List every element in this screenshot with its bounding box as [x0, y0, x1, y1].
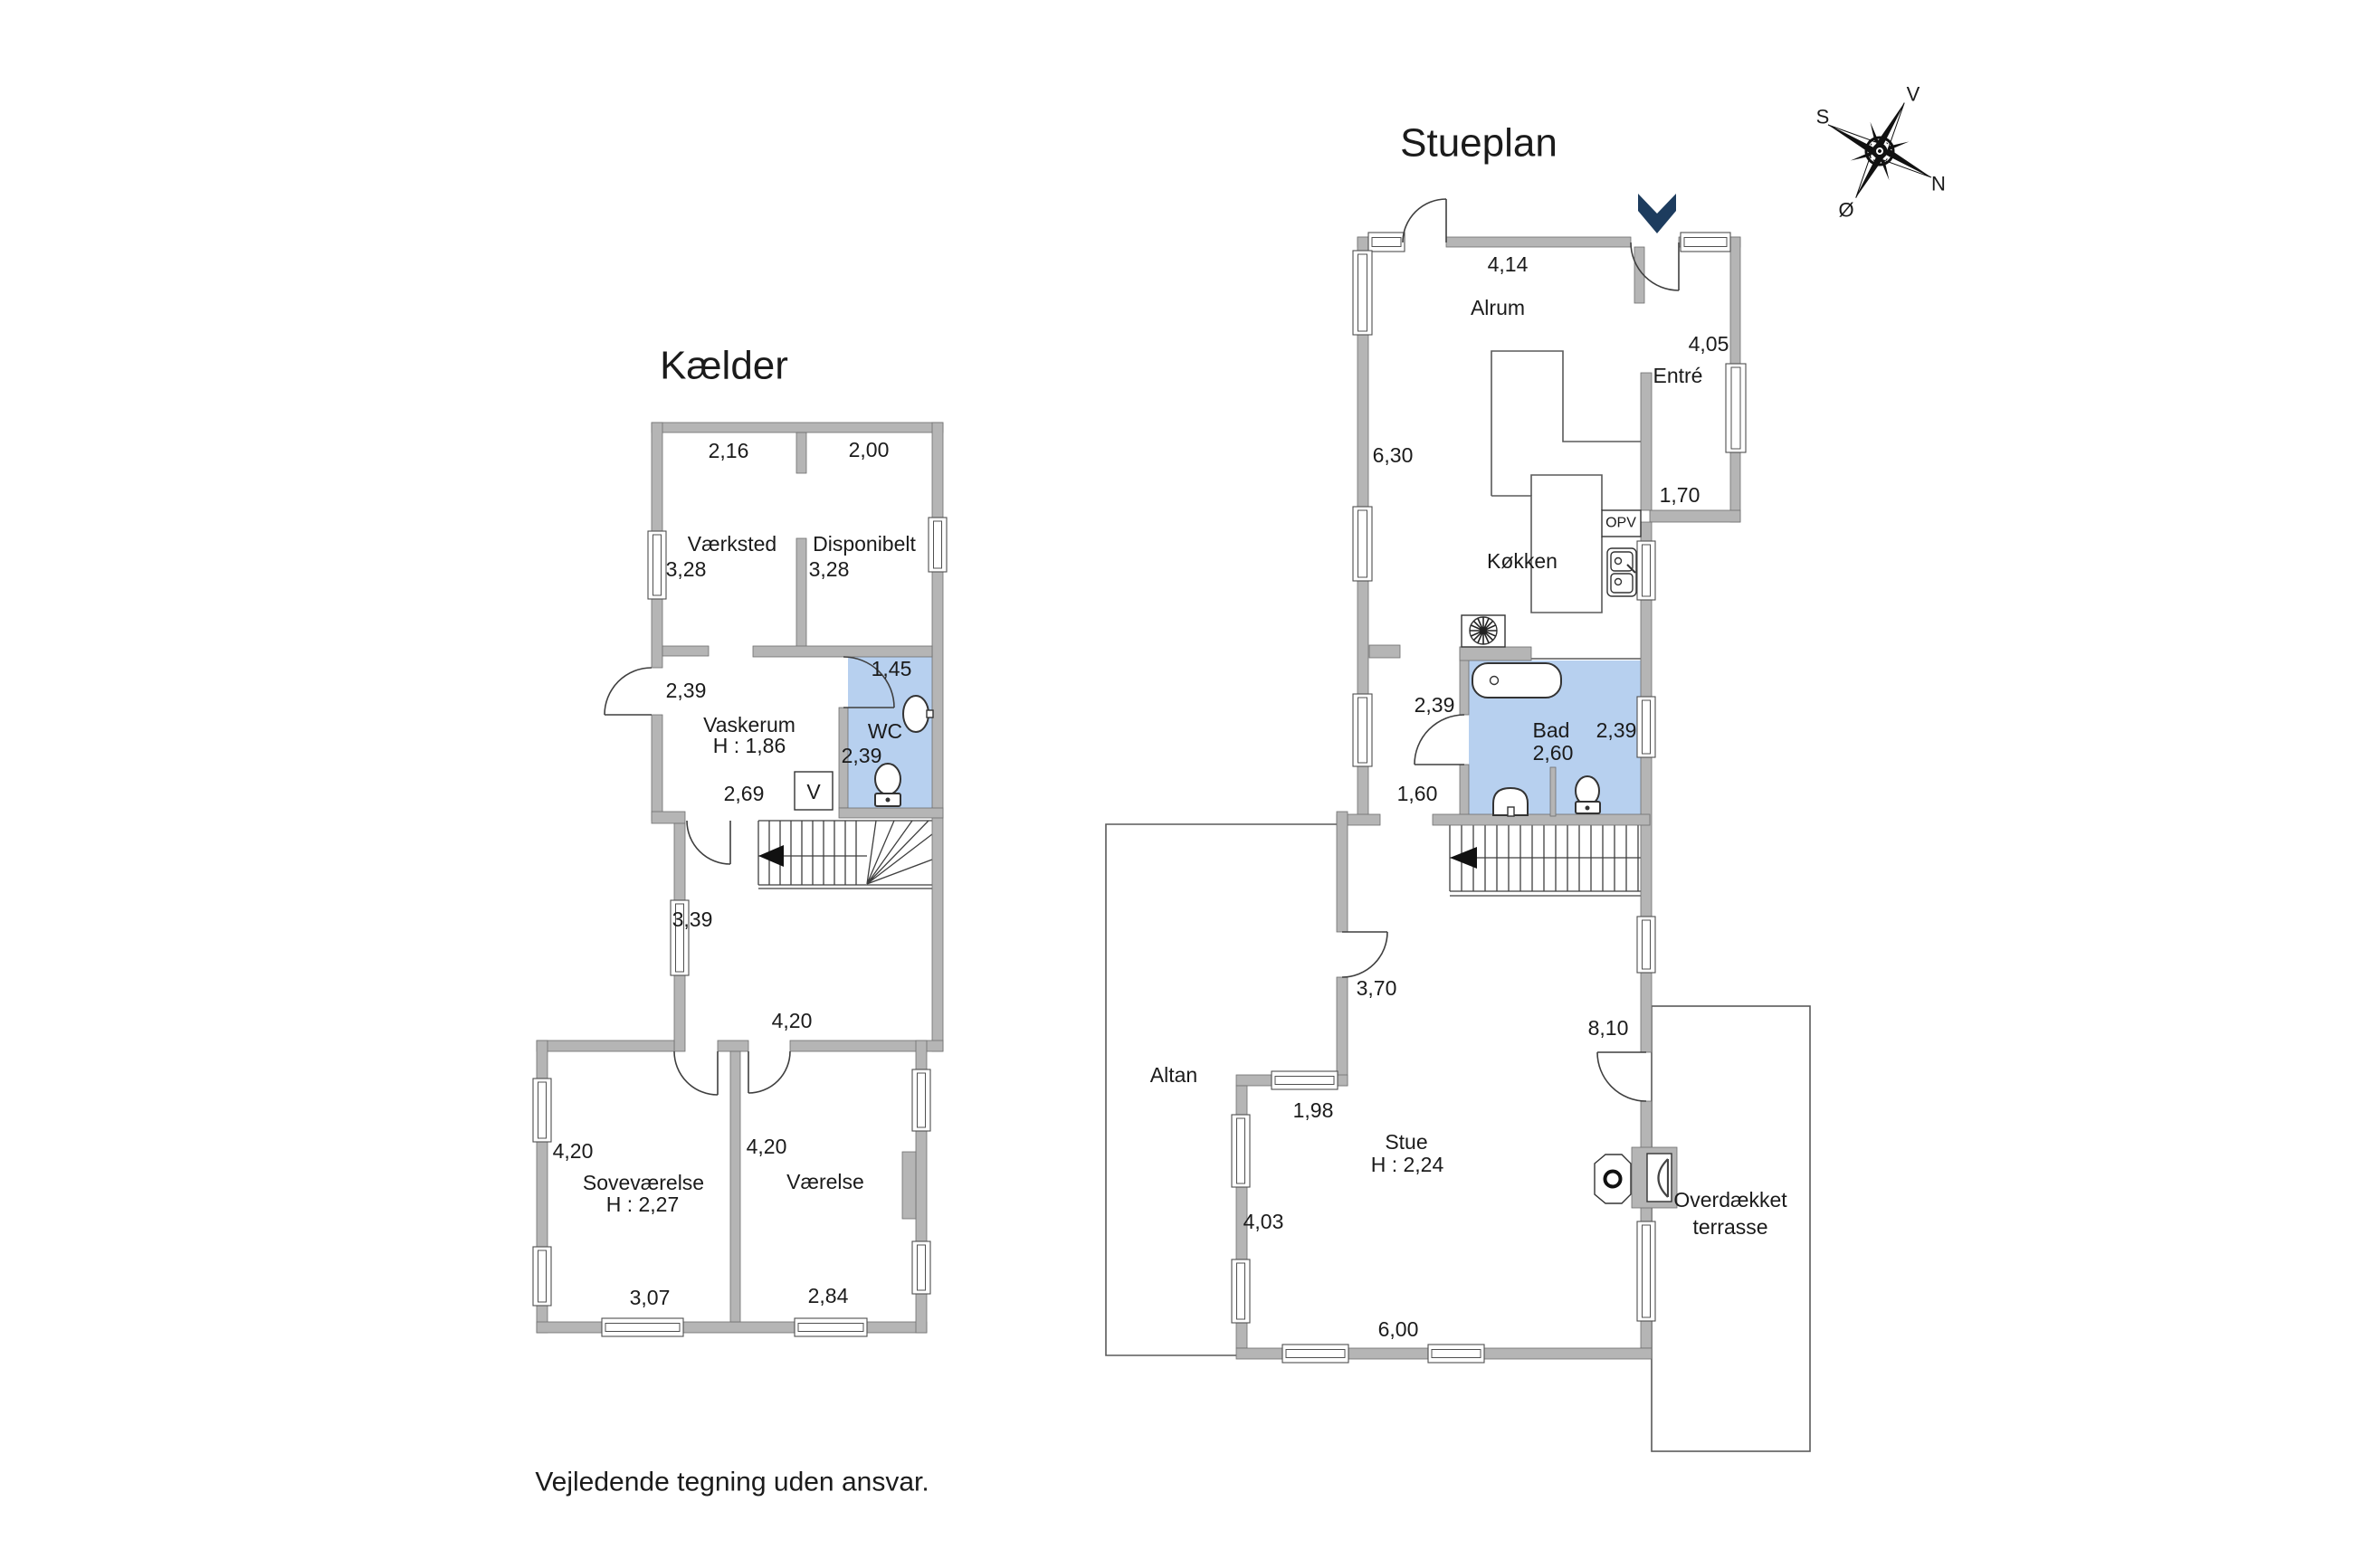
room-label-alrum: Alrum — [1471, 296, 1525, 319]
kaelder-title: Kælder — [660, 344, 788, 388]
room-label-altan: Altan — [1150, 1063, 1197, 1087]
stueplan-stairs — [1450, 825, 1650, 896]
dim-label: 2,69 — [724, 782, 765, 805]
room-label-disponibelt: Disponibelt — [813, 532, 916, 556]
compass-west-label: V — [1907, 83, 1920, 106]
dim-label: 3,28 — [809, 557, 850, 581]
room-label-terrasse-line2: terrasse — [1692, 1215, 1767, 1239]
stove-fan-icon — [1462, 615, 1505, 647]
dim-label: 6,30 — [1373, 443, 1414, 467]
dim-label: 3,07 — [630, 1286, 671, 1309]
dim-label: 2,39 — [666, 679, 707, 702]
room-label-stue: Stue — [1385, 1130, 1427, 1154]
dim-label: 4,14 — [1488, 252, 1529, 276]
room-label-vaerksted: Værksted — [688, 532, 776, 556]
dim-label: 4,05 — [1689, 332, 1729, 356]
kaelder-walls — [537, 423, 943, 1333]
dim-label: 3,28 — [666, 557, 707, 581]
dim-label: 2,16 — [709, 439, 749, 462]
fireplace-icon — [1595, 1147, 1677, 1208]
room-label-terrasse-line1: Overdækket — [1673, 1188, 1787, 1212]
dim-label: 2,39 — [1415, 693, 1455, 717]
room-label-sovevaerelse: Soveværelse — [583, 1171, 704, 1194]
kaelder-wc-toilet-icon — [875, 764, 900, 806]
dim-label: 2,60 — [1533, 741, 1574, 765]
dim-label: 3,70 — [1357, 976, 1397, 1000]
kaelder-stairs-direction-arrow — [758, 845, 784, 867]
kaelder-plan: Kælder 2,16 2,00 Værksted 3,28 Disponibe… — [533, 344, 947, 1337]
bathtub-icon — [1472, 663, 1561, 698]
room-height-label: H : 1,86 — [713, 734, 786, 757]
opv-label: OPV — [1605, 516, 1636, 531]
dim-label: 1,98 — [1293, 1098, 1334, 1122]
dim-label: 8,10 — [1588, 1016, 1629, 1040]
floor-plan-page: Kælder 2,16 2,00 Værksted 3,28 Disponibe… — [0, 0, 2353, 1568]
dim-label: 4,20 — [747, 1135, 787, 1158]
bad-toilet-icon — [1576, 776, 1600, 813]
dim-label: 4,20 — [772, 1009, 813, 1032]
bad-divider-wall — [1550, 767, 1556, 816]
compass-north-label: N — [1931, 173, 1946, 195]
chimney — [902, 1152, 916, 1219]
v-box-label: V — [806, 780, 821, 803]
room-height-label: H : 2,27 — [606, 1193, 680, 1216]
dim-label: 2,00 — [849, 438, 890, 461]
kaelder-stairs — [758, 821, 932, 889]
stueplan-title: Stueplan — [1400, 121, 1558, 166]
compass-rose-icon: S V N Ø — [1805, 76, 1957, 223]
entry-arrow-icon — [1638, 194, 1676, 233]
dim-label: 4,20 — [553, 1139, 594, 1163]
dim-label: 3,39 — [672, 908, 713, 931]
bad-sink-icon — [1493, 788, 1528, 816]
floor-plan-drawing: Kælder 2,16 2,00 Værksted 3,28 Disponibe… — [0, 0, 2353, 1568]
kitchen-counter-outline — [1491, 351, 1641, 659]
room-label-koekken: Køkken — [1487, 549, 1558, 573]
room-label-entre: Entré — [1653, 364, 1703, 387]
dim-label: 6,00 — [1378, 1317, 1419, 1341]
room-label-vaerelse: Værelse — [786, 1170, 864, 1193]
dim-label: 4,03 — [1243, 1210, 1284, 1233]
dim-label: 2,84 — [808, 1284, 849, 1307]
room-label-wc: WC — [868, 719, 902, 743]
stueplan-stairs-direction-arrow — [1450, 847, 1477, 869]
disclaimer-text: Vejledende tegning uden ansvar. — [535, 1468, 929, 1497]
stueplan-plan: Stueplan 4,14 Alrum 4,05 Entré 6,30 1,70… — [1106, 121, 1810, 1452]
kitchen-sink-icon — [1607, 548, 1636, 596]
compass-east-label: Ø — [1838, 199, 1853, 222]
dim-label: 2,39 — [1596, 718, 1637, 742]
dim-label: 1,70 — [1660, 483, 1700, 507]
dim-label: 1,60 — [1397, 782, 1438, 805]
dim-label: 2,39 — [842, 744, 882, 767]
compass-south-label: S — [1816, 106, 1830, 128]
room-label-bad: Bad — [1533, 718, 1570, 742]
room-height-label: H : 2,24 — [1371, 1153, 1444, 1176]
dim-label: 1,45 — [872, 657, 912, 680]
